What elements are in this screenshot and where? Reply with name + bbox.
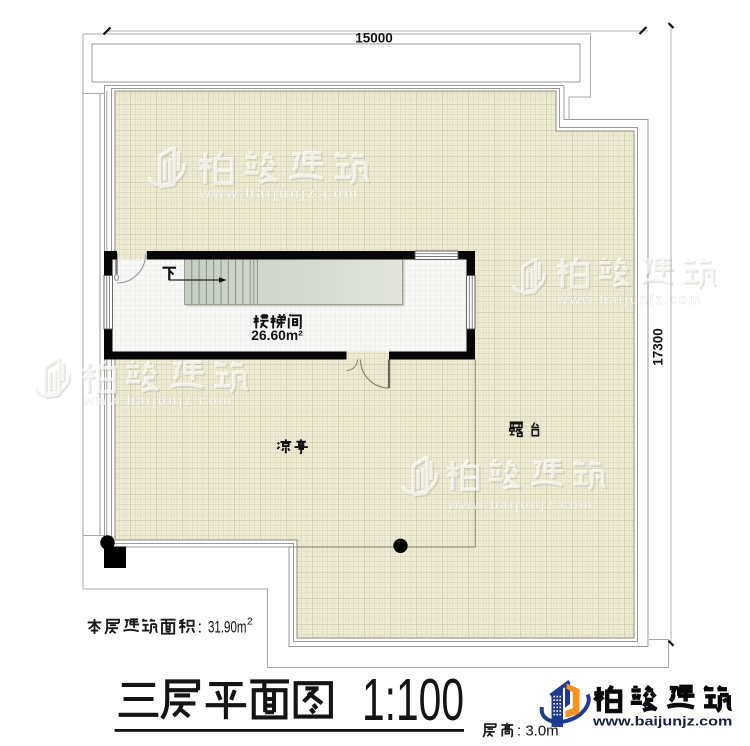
svg-text:17300: 17300 [651, 328, 666, 366]
svg-text:www.baijunjz.com: www.baijunjz.com [198, 186, 359, 202]
svg-text:www.baijunjz.com: www.baijunjz.com [82, 392, 233, 408]
svg-text::: : [198, 619, 203, 637]
svg-text:31.90m: 31.90m [208, 619, 247, 637]
svg-text:1:100: 1:100 [362, 667, 464, 733]
svg-text:www.baijunjz.com: www.baijunjz.com [556, 292, 702, 307]
svg-text:www.baijunjz.com: www.baijunjz.com [592, 715, 733, 729]
svg-text:26.60m²: 26.60m² [251, 328, 303, 343]
svg-text:15000: 15000 [355, 31, 393, 46]
svg-text:2: 2 [247, 616, 253, 628]
svg-text:www.baijunjz.com: www.baijunjz.com [447, 497, 593, 512]
